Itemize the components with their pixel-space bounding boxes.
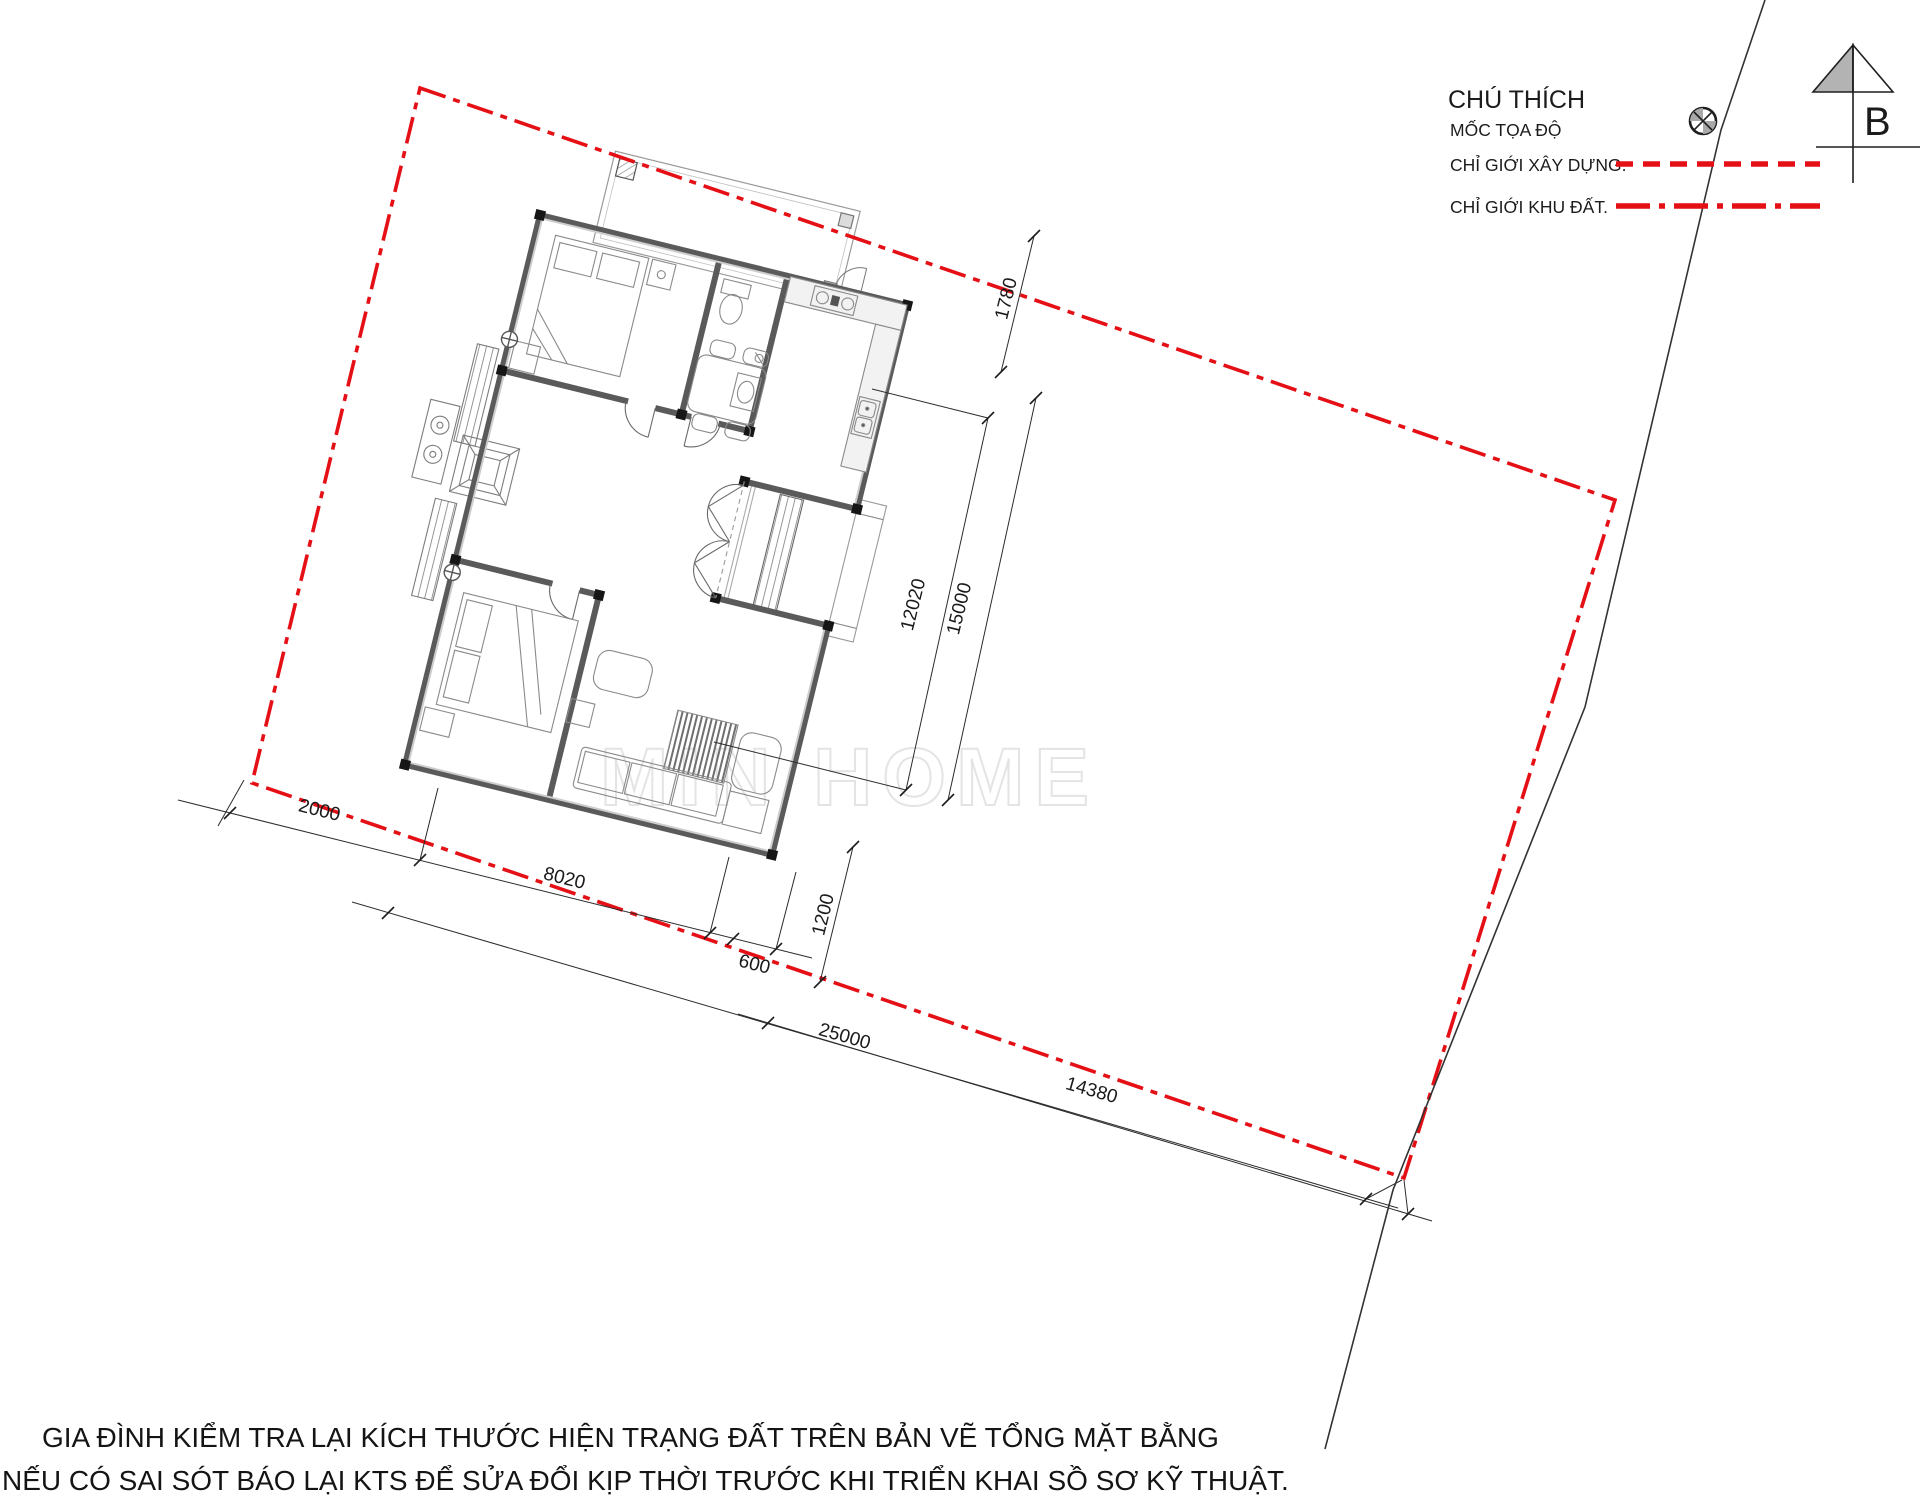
dim-2000: 2000 <box>296 795 342 826</box>
left-yard-features <box>384 336 541 612</box>
notes-block: GIA ĐÌNH KIỂM TRA LẠI KÍCH THƯỚC HIỆN TR… <box>2 1421 1289 1496</box>
legend-item-moc-toa-do: MỐC TỌA ĐỘ <box>1450 119 1562 140</box>
dim-1200: 1200 <box>808 892 839 938</box>
legend: CHÚ THÍCH MỐC TỌA ĐỘ CHỈ GIỚI XÂY DỰNG. … <box>1448 85 1820 217</box>
dim-25000: 25000 <box>816 1019 873 1054</box>
survey-marker-icon <box>1690 108 1716 134</box>
site-plan-canvas: MIN HOME <box>0 0 1920 1502</box>
dim-12020: 12020 <box>897 576 930 632</box>
site-plan-page: MIN HOME <box>0 0 1920 1502</box>
entry-folding-doors <box>688 475 745 598</box>
north-label: B <box>1864 100 1891 144</box>
kitchen-counter <box>750 277 908 473</box>
dim-1780: 1780 <box>991 276 1022 322</box>
note-line-1: GIA ĐÌNH KIỂM TRA LẠI KÍCH THƯỚC HIỆN TR… <box>42 1421 1219 1453</box>
road-edge-line <box>1325 0 1765 1449</box>
note-line-2: NẾU CÓ SAI SÓT BÁO LẠI KTS ĐỂ SỬA ĐỔI KỊ… <box>2 1464 1289 1496</box>
washer-units <box>412 399 460 484</box>
legend-item-chi-gioi-xay-dung: CHỈ GIỚI XÂY DỰNG. <box>1450 154 1626 175</box>
bathroom-door <box>684 417 720 453</box>
legend-title: CHÚ THÍCH <box>1448 85 1585 114</box>
dim-8020: 8020 <box>541 863 587 894</box>
bedroom1-door <box>619 401 655 437</box>
dim-15000: 15000 <box>943 580 976 636</box>
north-arrow: B <box>1813 45 1920 183</box>
dim-600: 600 <box>736 951 772 979</box>
dim-14380: 14380 <box>1063 1073 1120 1108</box>
land-boundary-line <box>252 88 1615 1178</box>
legend-item-chi-gioi-khu-dat: CHỈ GIỚI KHU ĐẤT. <box>1450 196 1608 217</box>
